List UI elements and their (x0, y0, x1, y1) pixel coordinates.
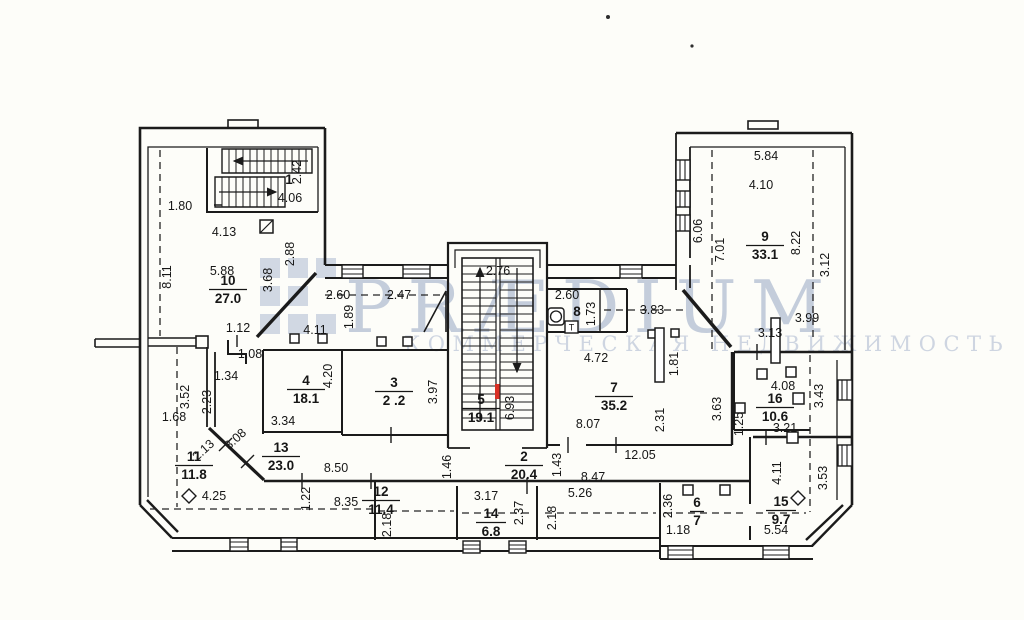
room-number: 1 (285, 172, 293, 187)
dimension-label: 4.06 (278, 191, 302, 205)
dimension-label: 4.20 (321, 364, 335, 388)
room-number: 11 (187, 449, 202, 464)
room-label-12: 1211.4 (362, 484, 400, 517)
room-label-14: 146.8 (476, 506, 506, 539)
dimension-label: 2.31 (653, 408, 667, 432)
dimension-label: 4.25 (202, 489, 226, 503)
dimension-label: 3.68 (261, 268, 275, 292)
dimension-label: 3.52 (178, 385, 192, 409)
dimension-label: 8.35 (334, 495, 358, 509)
room-area: 2 .2 (383, 393, 406, 408)
room-label-9: 933.1 (746, 229, 784, 262)
dimension-label: 4.11 (770, 461, 784, 484)
dimension-label: 1.73 (584, 302, 598, 326)
room-area: 7 (693, 513, 701, 528)
dimension-label: 2.18 (545, 506, 559, 530)
dimension-label: 1.08 (238, 347, 262, 361)
room-area: 6.8 (482, 524, 501, 539)
dimension-label: 5.26 (568, 486, 592, 500)
shaft-symbol (260, 220, 273, 233)
room-area: 35.2 (601, 398, 627, 413)
dimension-label: 1.34 (214, 369, 238, 383)
room-area: 18.1 (293, 391, 320, 406)
room-area: 19.1 (468, 410, 495, 425)
dimension-label: 3.97 (426, 380, 440, 404)
dimension-label: 3.99 (795, 311, 819, 325)
dimension-label: 3.83 (640, 303, 664, 317)
room-label-7: 735.2 (595, 380, 633, 413)
room-label-16: 1610.6 (756, 391, 794, 424)
room-label-8: 8 (573, 304, 581, 319)
dimension-label: 2.88 (283, 242, 297, 266)
room-number: 2 (520, 449, 528, 464)
room-label-5: 519.1 (462, 392, 500, 425)
window-hatches (230, 160, 852, 559)
dimension-label: 6.06 (691, 219, 705, 243)
room-number: 8 (573, 304, 581, 319)
room-label-1: 1 (285, 172, 293, 187)
dimension-label: 4.13 (212, 225, 236, 239)
room-label-13: 1323.0 (262, 440, 300, 473)
dimension-label: 1.12 (226, 321, 250, 335)
dimension-label: 7.01 (713, 238, 727, 262)
room-area: 20.4 (511, 467, 538, 482)
dimension-label: 1.46 (440, 455, 454, 479)
dimension-label: 8.11 (160, 265, 174, 288)
dimension-label: 2.60 (555, 288, 579, 302)
dimension-label: 2.76 (486, 264, 510, 278)
dimension-label: 1.18 (666, 523, 690, 537)
dimension-label: 1.22 (299, 487, 313, 511)
dimension-label: 8.47 (581, 470, 605, 484)
dimension-label: 5.84 (754, 149, 778, 163)
dimension-label: 2.60 (326, 288, 350, 302)
room-area: 33.1 (752, 247, 779, 262)
dimension-label: 3.12 (818, 253, 832, 277)
dimension-label: 4.10 (749, 178, 773, 192)
dimension-label: 3.63 (710, 397, 724, 421)
dimension-label: 3.53 (816, 466, 830, 490)
room-label-2: 220.4 (505, 449, 543, 482)
room-number: 16 (767, 391, 783, 406)
room-number: 3 (390, 375, 398, 390)
room-number: 9 (761, 229, 769, 244)
room-area: 27.0 (215, 291, 241, 306)
scan-specks (606, 15, 694, 48)
dimension-label: 8.50 (324, 461, 348, 475)
wall-bump-top-right (748, 121, 778, 129)
room-number: 7 (610, 380, 618, 395)
dimension-label: 8.22 (789, 231, 803, 255)
room-area: 9.7 (772, 512, 791, 527)
dimension-label: 2.23 (200, 390, 214, 414)
floorplan-drawing: PRÆDIUM КОММЕРЧЕСКАЯ НЕДВИЖИМОСТЬ (0, 0, 1024, 620)
dimension-label: 3.34 (271, 414, 295, 428)
red-survey-mark (495, 384, 500, 399)
room-number: 15 (773, 494, 789, 509)
dimension-label: 2.37 (512, 501, 526, 525)
room-number: 6 (693, 495, 701, 510)
room-number: 4 (302, 373, 310, 388)
dimension-label: 1.89 (342, 305, 356, 329)
room-area: 10.6 (762, 409, 789, 424)
room-area: 11.4 (368, 502, 394, 517)
dimension-label: 1.25 (732, 412, 746, 436)
dimension-label: 8.07 (576, 417, 600, 431)
towel-dryer-label: Т (569, 323, 575, 333)
room-number: 13 (273, 440, 289, 455)
room-label-3: 32 .2 (375, 375, 413, 408)
room-number: 12 (373, 484, 388, 499)
dimension-label: 4.72 (584, 351, 608, 365)
room-label-6: 67 (690, 495, 704, 528)
room-area: 23.0 (268, 458, 294, 473)
watermark-subtitle-text: КОММЕРЧЕСКАЯ НЕДВИЖИМОСТЬ (404, 332, 1010, 356)
dimension-label: 1.43 (550, 453, 564, 477)
dimension-label: 3.43 (812, 384, 826, 408)
dimension-label: 3.13 (758, 326, 782, 340)
dimension-label: 3.17 (474, 489, 498, 503)
dimension-label: 1.68 (162, 410, 186, 424)
room-label-4: 418.1 (287, 373, 325, 406)
dimension-label: 3.08 (222, 426, 249, 453)
dimension-label: 2.36 (661, 494, 675, 518)
dimension-label: 12.05 (624, 448, 655, 462)
room-number: 5 (477, 392, 485, 407)
room-area: 11.8 (181, 467, 207, 482)
room-number: 14 (483, 506, 499, 521)
dimension-label: 1.80 (168, 199, 192, 213)
floorplan-page: PRÆDIUM КОММЕРЧЕСКАЯ НЕДВИЖИМОСТЬ (0, 0, 1024, 620)
dimension-label: 2.47 (387, 288, 411, 302)
room-number: 10 (220, 273, 235, 288)
dimension-label: 4.11 (303, 323, 326, 337)
dimension-label: 6.93 (503, 396, 517, 420)
dimension-label: 1.81 (667, 352, 681, 376)
